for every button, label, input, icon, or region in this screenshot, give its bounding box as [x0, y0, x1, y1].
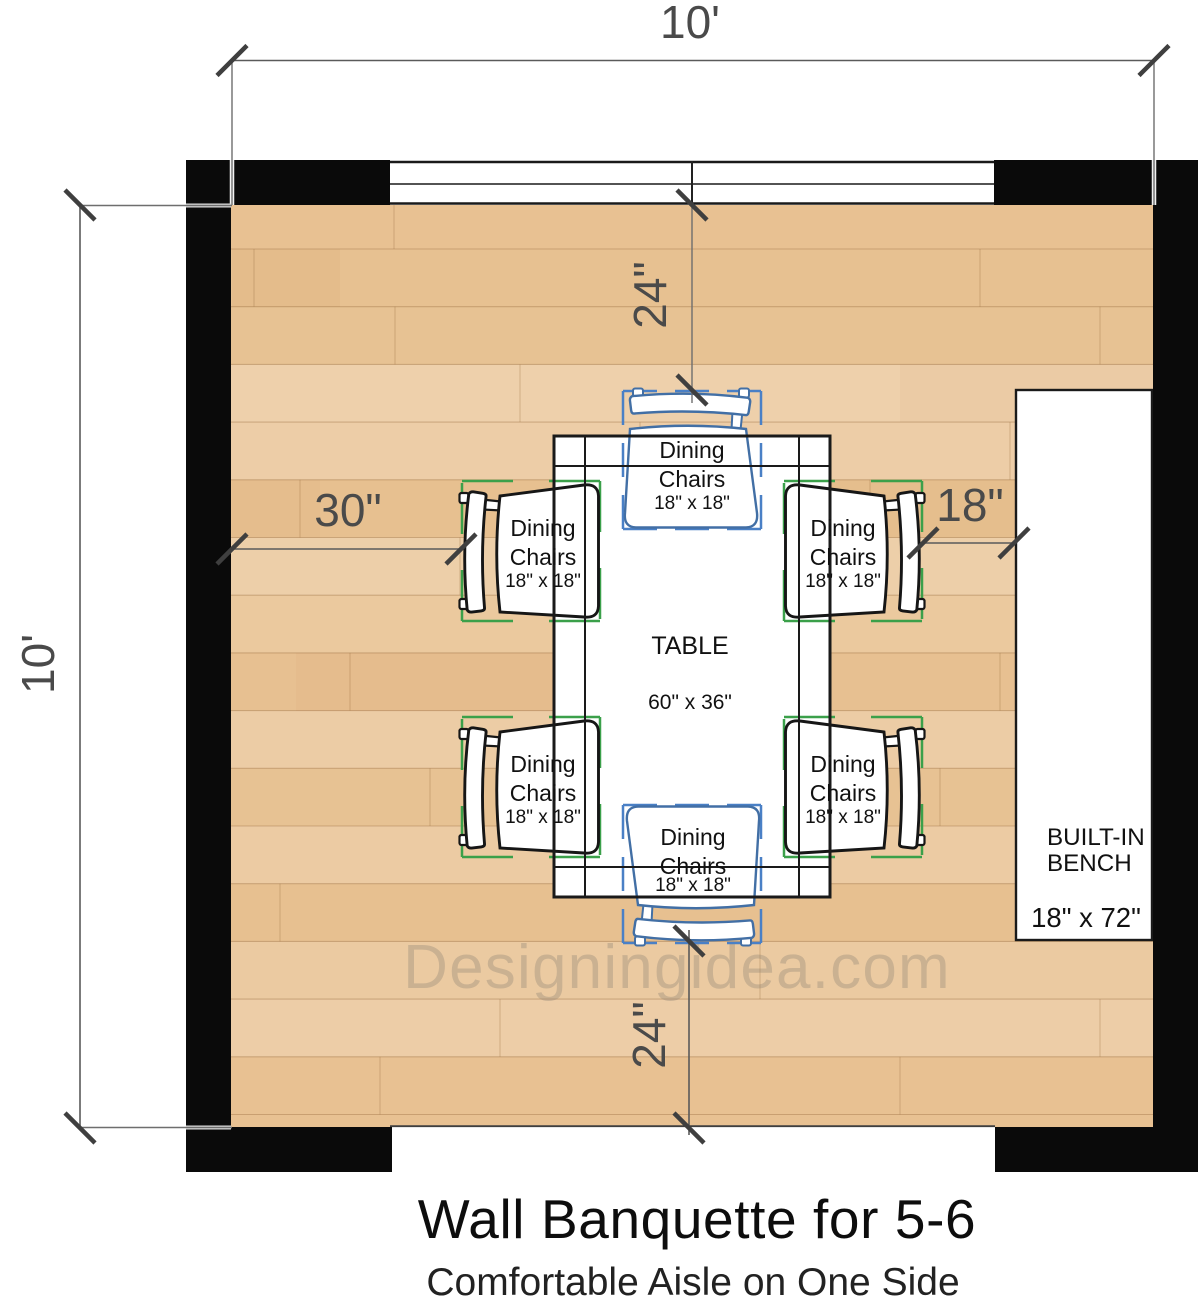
svg-text:18" x 18": 18" x 18": [655, 875, 731, 896]
svg-text:Dining: Dining: [810, 515, 875, 541]
svg-text:Dining: Dining: [659, 437, 724, 463]
svg-text:Chairs: Chairs: [510, 780, 576, 806]
svg-text:18" x 72": 18" x 72": [1031, 902, 1141, 933]
svg-text:Comfortable Aisle on One Side: Comfortable Aisle on One Side: [426, 1261, 959, 1301]
svg-text:10': 10': [660, 0, 720, 48]
svg-text:Chairs: Chairs: [659, 466, 725, 492]
svg-text:Chairs: Chairs: [810, 780, 876, 806]
svg-text:24": 24": [623, 1001, 675, 1069]
svg-text:18" x 18": 18" x 18": [505, 807, 581, 828]
svg-text:Dining: Dining: [810, 751, 875, 777]
svg-text:Chairs: Chairs: [510, 544, 576, 570]
svg-text:18": 18": [936, 479, 1004, 531]
svg-text:18" x 18": 18" x 18": [654, 493, 730, 514]
svg-text:Dining: Dining: [510, 515, 575, 541]
svg-text:18" x 18": 18" x 18": [805, 571, 881, 592]
svg-text:30": 30": [314, 484, 382, 536]
svg-text:Chairs: Chairs: [810, 544, 876, 570]
svg-text:10': 10': [12, 634, 64, 694]
svg-text:Dining: Dining: [510, 751, 575, 777]
svg-text:Dining: Dining: [660, 824, 725, 850]
svg-text:60" x 36": 60" x 36": [648, 691, 732, 714]
svg-text:Wall Banquette for 5-6: Wall Banquette for 5-6: [418, 1188, 976, 1250]
svg-text:18" x 18": 18" x 18": [505, 571, 581, 592]
svg-text:BUILT-IN: BUILT-IN: [1047, 824, 1145, 851]
svg-text:BENCH: BENCH: [1047, 850, 1132, 877]
svg-text:24": 24": [624, 261, 676, 329]
svg-text:18" x 18": 18" x 18": [805, 807, 881, 828]
svg-text:TABLE: TABLE: [651, 632, 728, 660]
